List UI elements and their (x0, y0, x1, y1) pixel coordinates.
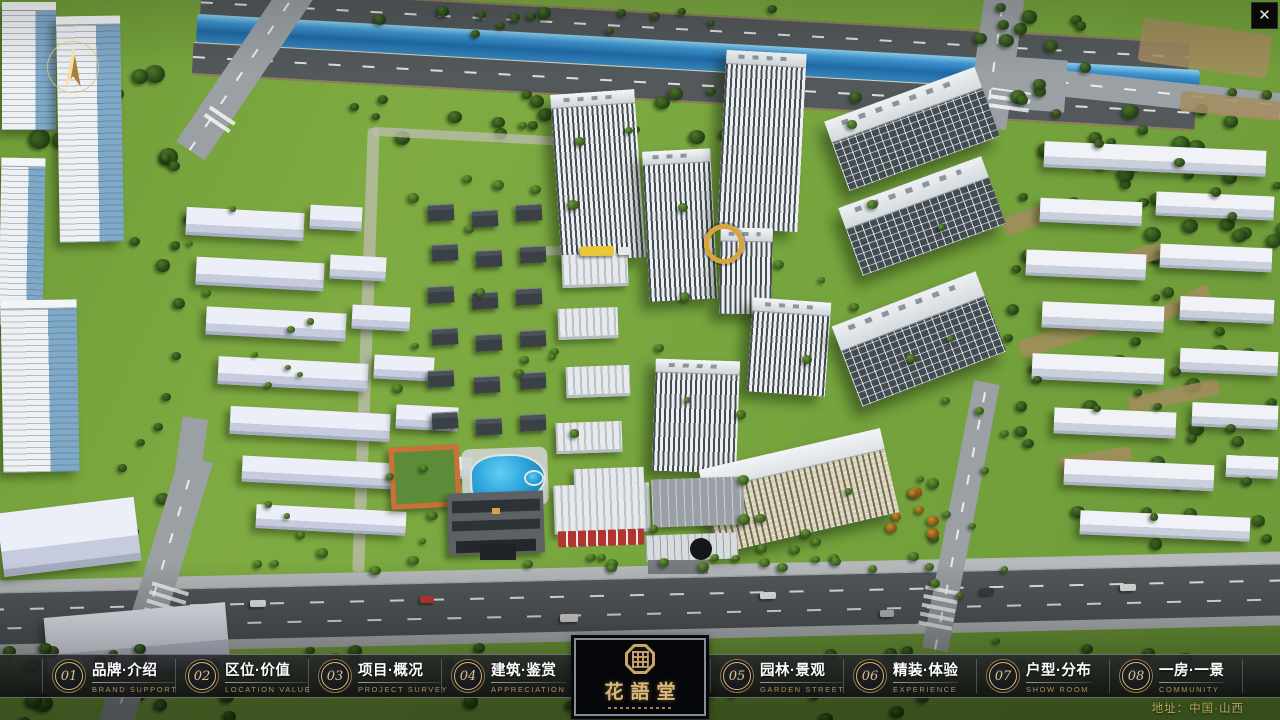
tree-cluster (497, 22, 505, 29)
tree-cluster (1023, 439, 1034, 449)
tree-cluster (254, 560, 262, 567)
tree-cluster (847, 120, 856, 128)
residential-tower (747, 297, 831, 396)
row-building (1025, 249, 1146, 280)
tree-cluster (650, 525, 659, 533)
left-slab (0, 497, 141, 577)
tree-cluster (1171, 367, 1182, 377)
nav-number-badge: 06 (856, 662, 884, 690)
nav-subtitle: APPRECIATION (491, 685, 566, 694)
nav-subtitle: EXPERIENCE (893, 685, 958, 694)
tree-cluster (437, 6, 449, 16)
midrise-block (555, 421, 622, 454)
row-building (1180, 348, 1279, 376)
tree-cluster (1252, 515, 1265, 527)
nav-separator (441, 659, 442, 693)
tree-cluster (928, 478, 939, 488)
row-building (1044, 141, 1267, 177)
nav-separator (843, 659, 844, 693)
tree-cluster (1019, 193, 1028, 201)
tree-cluster (29, 129, 51, 149)
nav-underline (92, 682, 175, 683)
row-building (1160, 244, 1273, 273)
nav-item-one-room-one-view[interactable]: 08 一房·一景COMMUNITY (1109, 655, 1242, 697)
tree-cluster (689, 130, 705, 144)
nav-item-brand-intro[interactable]: 01 品牌·介绍BRAND SUPPORT (42, 655, 175, 697)
row-building (373, 354, 434, 381)
tree-cluster (1131, 337, 1141, 346)
tree-cluster (1163, 287, 1175, 298)
nav-subtitle: LOCATION VALUE (225, 685, 308, 694)
row-building (351, 304, 410, 331)
tree-cluster (378, 95, 388, 104)
tree-cluster (587, 554, 595, 561)
vehicle (980, 588, 994, 595)
tree-cluster (530, 95, 544, 108)
nav-number-badge: 05 (723, 662, 751, 690)
tree-cluster (975, 407, 984, 415)
tree-cluster (850, 303, 859, 311)
tree-cluster (570, 429, 579, 437)
nav-number-badge: 02 (188, 662, 216, 690)
tree-cluster (493, 180, 504, 190)
tree-cluster (930, 579, 940, 588)
nav-item-floorplan-distribution[interactable]: 07 户型·分布SHOW ROOM (976, 655, 1109, 697)
retail-building (553, 482, 651, 534)
tree-cluster (420, 538, 426, 543)
art-ring (704, 224, 744, 264)
tree-cluster (374, 14, 386, 25)
tree-cluster (1004, 334, 1013, 342)
nav-item-location-value[interactable]: 02 区位·价值LOCATION VALUE (175, 655, 308, 697)
tree-cluster (253, 352, 259, 357)
tree-cluster (607, 564, 616, 572)
tree-cluster (1224, 115, 1239, 128)
seal-inner (628, 647, 652, 671)
tree-cluster (1215, 327, 1225, 336)
tree-cluster (738, 514, 750, 525)
tree-cluster (519, 122, 527, 129)
tree-cluster (173, 298, 185, 309)
tree-cluster (956, 592, 964, 599)
tree-cluster (162, 393, 171, 401)
tree-cluster (790, 546, 800, 555)
tree-cluster (522, 90, 532, 99)
presentation-viewport: ✕ 01 品牌·介绍BRAND SUPPORT 02 区位·价值LOCATION… (0, 0, 1280, 720)
nav-number: 01 (61, 669, 78, 684)
residential-tower (550, 89, 646, 262)
nav-title: 区位·价值 (225, 659, 308, 680)
nav-underline (893, 682, 958, 683)
tree-cluster (655, 96, 670, 109)
row-building (1040, 198, 1143, 226)
nav-item-architecture-appreciation[interactable]: 04 建筑·鉴赏APPRECIATION (441, 655, 574, 697)
retail-building (651, 476, 745, 527)
tree-cluster (774, 260, 784, 269)
tree-cluster (1015, 426, 1027, 436)
tree-cluster (169, 161, 180, 171)
tree-cluster (317, 548, 328, 558)
nav-separator (308, 659, 309, 693)
tree-cluster (768, 5, 778, 14)
row-building (1031, 353, 1164, 385)
nav-subtitle: GARDEN STREET (760, 685, 843, 694)
villa (520, 245, 547, 263)
tree-cluster (476, 288, 485, 296)
villa (516, 203, 543, 221)
nav-number: 02 (194, 669, 211, 684)
tree-cluster (819, 713, 832, 720)
nav-separator (976, 659, 977, 693)
tree-cluster (265, 501, 272, 507)
tree-cluster (412, 343, 419, 349)
main-gate-roof (480, 544, 516, 560)
villa (520, 329, 547, 347)
tree-cluster (732, 555, 740, 562)
tree-cluster (927, 516, 939, 526)
community-path (352, 128, 379, 572)
tree-cluster (463, 175, 471, 182)
tree-cluster (1187, 434, 1197, 443)
tree-cluster (531, 185, 541, 194)
residential-tower (717, 50, 806, 232)
plaza-circle (690, 538, 712, 560)
nav-underline (358, 682, 441, 683)
tree-cluster (908, 489, 918, 498)
tree-cluster (427, 511, 438, 521)
row-building (1226, 455, 1279, 479)
tree-cluster (161, 153, 171, 162)
nav-underline (1026, 682, 1091, 683)
villa (428, 369, 455, 387)
tree-cluster (1138, 125, 1148, 134)
nav-title: 园林·景观 (760, 659, 843, 680)
tree-cluster (598, 554, 606, 561)
tree-cluster (154, 699, 167, 711)
tree-cluster (1022, 10, 1037, 23)
row-building (205, 306, 346, 341)
tree-cluster (1076, 21, 1086, 30)
vehicle (1120, 584, 1136, 591)
tree-cluster (974, 33, 987, 45)
nav-title: 品牌·介绍 (92, 659, 175, 680)
nav-number: 08 (1128, 669, 1145, 684)
villa (432, 243, 459, 261)
nav-number-badge: 04 (454, 662, 482, 690)
row-building (185, 207, 304, 241)
nav-number-badge: 03 (321, 662, 349, 690)
nav-number-badge: 08 (1122, 662, 1150, 690)
nav-subtitle: COMMUNITY (1159, 685, 1224, 694)
villa (428, 203, 455, 221)
tree-cluster (307, 318, 314, 324)
nav-subtitle: BRAND SUPPORT (92, 685, 175, 694)
tree-cluster (393, 384, 403, 393)
tree-cluster (1228, 212, 1238, 221)
nav-item-project-overview[interactable]: 03 项目·概况PROJECT SURVEY (308, 655, 441, 697)
tree-cluster (707, 88, 715, 96)
tree-cluster (1232, 436, 1244, 447)
nav-title: 项目·概况 (358, 659, 441, 680)
tree-cluster (1266, 234, 1280, 248)
tree-cluster (680, 292, 690, 301)
tree-cluster (524, 560, 533, 568)
nav-number: 04 (460, 669, 477, 684)
row-building (255, 504, 406, 536)
nav-underline (225, 682, 308, 683)
nav-title: 精装·体验 (893, 659, 958, 680)
tree-cluster (285, 365, 291, 370)
tree-cluster (1135, 389, 1142, 395)
tree-cluster (408, 193, 419, 203)
tree-cluster (969, 523, 975, 529)
nav-item-garden-landscape[interactable]: 05 园林·景观GARDEN STREET (710, 655, 843, 697)
tree-cluster (567, 200, 578, 210)
villa (432, 327, 459, 345)
tree-cluster (265, 382, 272, 389)
tree-cluster (659, 558, 669, 567)
tree-cluster (801, 529, 811, 538)
tree-cluster (118, 464, 127, 472)
vehicle (560, 614, 578, 622)
tree-cluster (575, 137, 585, 146)
tree-cluster (1153, 294, 1161, 301)
tree-cluster (287, 326, 295, 333)
row-building (1080, 510, 1251, 541)
villa (428, 285, 455, 303)
residential-tower (642, 148, 718, 301)
tree-cluster (1174, 158, 1184, 167)
vehicle (618, 247, 630, 255)
tree-cluster (420, 465, 428, 472)
nav-number: 05 (729, 669, 746, 684)
storefront-awnings (558, 529, 645, 548)
tree-cluster (515, 369, 524, 377)
residential-tower (652, 359, 740, 474)
tree-cluster (711, 554, 719, 561)
midrise-block (565, 365, 630, 398)
tree-cluster (203, 289, 211, 296)
tree-cluster (408, 556, 419, 566)
tree-cluster (1080, 62, 1092, 72)
tree-cluster (651, 12, 660, 20)
nav-subtitle: PROJECT SURVEY (358, 685, 441, 694)
tree-cluster (448, 111, 461, 123)
tree-cluster (187, 241, 193, 246)
vehicle (420, 596, 434, 603)
tree-cluster (1144, 227, 1161, 242)
gate-finial (492, 508, 500, 514)
tree-cluster (171, 241, 180, 249)
tree-cluster (819, 277, 826, 283)
nav-number-badge: 01 (55, 662, 83, 690)
tree-cluster (549, 354, 556, 360)
tree-cluster (474, 643, 485, 653)
tree-cluster (943, 511, 951, 518)
project-address: 地址：中国·山西 (1152, 700, 1244, 716)
tree-cluster (918, 476, 924, 482)
tree-cluster (812, 538, 821, 546)
tree-cluster (655, 344, 664, 352)
tree-cluster (738, 475, 749, 485)
nav-number: 03 (327, 669, 344, 684)
tree-cluster (1226, 424, 1236, 433)
vehicle (580, 246, 614, 257)
tree-cluster (132, 69, 149, 84)
nav-separator (710, 659, 711, 693)
villa (516, 287, 543, 305)
tree-cluster (678, 8, 686, 15)
tree-cluster (1045, 40, 1058, 52)
tree-cluster (1262, 90, 1272, 99)
tree-cluster (993, 638, 1000, 644)
nav-title: 一房·一景 (1159, 659, 1224, 680)
vehicle (760, 592, 776, 599)
tree-cluster (130, 237, 140, 246)
tree-cluster (1082, 644, 1094, 654)
nav-title: 户型·分布 (1026, 659, 1091, 680)
tree-cluster (892, 513, 901, 521)
midrise-block (557, 307, 618, 340)
nav-number: 07 (995, 669, 1012, 684)
vehicle (250, 600, 266, 607)
project-logo-panel[interactable]: 花語堂 (572, 636, 708, 718)
tree-cluster (1094, 139, 1104, 148)
tree-cluster (886, 523, 897, 533)
tree-cluster (521, 356, 530, 364)
villa (520, 413, 547, 431)
tree-cluster (350, 103, 359, 111)
nav-separator (42, 659, 43, 693)
tree-cluster (1154, 403, 1162, 411)
close-button[interactable]: ✕ (1251, 2, 1278, 29)
nav-separator (1242, 659, 1243, 693)
tree-cluster (172, 352, 181, 360)
nav-separator (175, 659, 176, 693)
tree-cluster (906, 354, 916, 363)
tree-cluster (947, 336, 954, 342)
vehicle (880, 610, 894, 617)
row-building (1041, 301, 1164, 332)
compass-north-icon (47, 41, 99, 93)
tree-cluster (1052, 109, 1061, 117)
tree-cluster (465, 225, 474, 233)
nav-underline (1159, 682, 1224, 683)
row-building (195, 257, 324, 292)
tree-cluster (996, 3, 1006, 12)
tree-cluster (1001, 430, 1009, 437)
tree-cluster (271, 560, 279, 567)
masterplan-render (0, 0, 1280, 720)
tree-cluster (1242, 477, 1253, 487)
row-building (217, 356, 368, 392)
tree-cluster (1033, 376, 1042, 384)
tree-cluster (981, 467, 989, 474)
tree-cluster (998, 20, 1009, 30)
tree-cluster (915, 506, 924, 514)
villa (476, 333, 503, 351)
row-building (1180, 296, 1275, 324)
tree-cluster (492, 117, 505, 128)
villa (476, 249, 503, 267)
swimming-pool (524, 470, 544, 486)
row-building (1053, 407, 1176, 438)
tree-cluster (1232, 229, 1247, 242)
tree-cluster (1150, 513, 1159, 521)
tree-cluster (606, 28, 613, 34)
tree-cluster (1016, 401, 1028, 412)
tree-cluster (1150, 538, 1162, 549)
tree-cluster (1182, 219, 1198, 233)
left-tower (1, 299, 80, 472)
tree-cluster (1262, 534, 1272, 543)
villa (472, 209, 499, 227)
tree-cluster (1012, 265, 1021, 273)
tree-cluster (528, 121, 538, 130)
seal-emblem-icon (625, 644, 655, 674)
tree-cluster (736, 410, 745, 418)
tree-cluster (137, 439, 145, 446)
nav-item-interior-experience[interactable]: 06 精装·体验EXPERIENCE (843, 655, 976, 697)
nav-subtitle: SHOW ROOM (1026, 685, 1091, 694)
logo-subtext (608, 707, 672, 709)
tree-cluster (154, 423, 163, 431)
nav-underline (760, 682, 843, 683)
tree-cluster (297, 531, 305, 538)
villa (474, 375, 501, 393)
tree-cluster (845, 488, 852, 495)
nav-number-badge: 07 (989, 662, 1017, 690)
tree-cluster (1007, 304, 1019, 315)
tree-cluster (156, 259, 170, 271)
tree-cluster (372, 113, 380, 120)
villa (476, 417, 503, 435)
row-building (309, 205, 362, 232)
nav-title: 建筑·鉴赏 (491, 659, 566, 680)
tree-cluster (757, 544, 767, 553)
villa (432, 411, 459, 429)
tree-cluster (39, 643, 51, 654)
row-building (1064, 459, 1215, 492)
project-logo-name: 花語堂 (597, 677, 682, 704)
nav-number: 06 (862, 669, 879, 684)
midrise-block (561, 253, 628, 288)
tree-cluster (850, 92, 862, 103)
tree-cluster (1017, 95, 1028, 105)
tree-cluster (1211, 187, 1222, 196)
tree-cluster (223, 711, 236, 720)
row-building (329, 255, 386, 282)
tree-cluster (698, 562, 709, 572)
nav-underline (491, 682, 566, 683)
tree-cluster (890, 706, 904, 718)
nav-separator (1109, 659, 1110, 693)
tree-cluster (1273, 182, 1280, 189)
tree-cluster (942, 397, 950, 404)
